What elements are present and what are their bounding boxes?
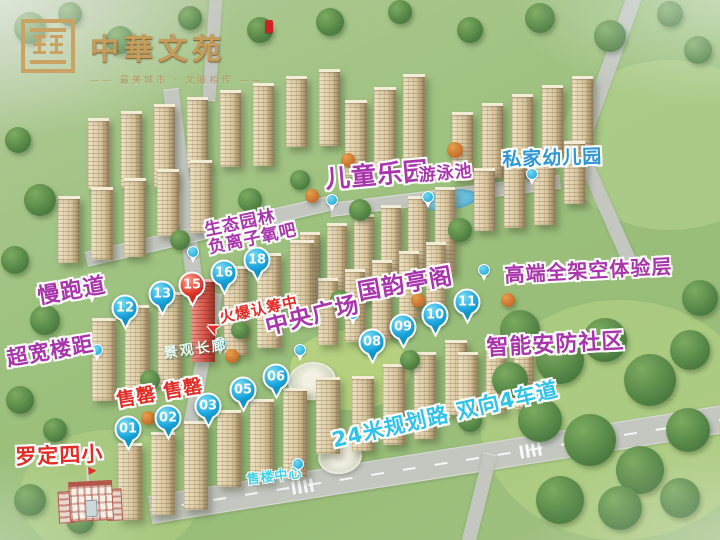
tree <box>564 414 616 466</box>
private-kindergarten-label: 私家幼儿园 <box>502 147 603 171</box>
elevated-experience-floor-label: 高端全架空体验层 <box>504 256 673 286</box>
building <box>286 76 307 147</box>
building <box>253 83 274 166</box>
building <box>157 169 179 236</box>
building <box>542 85 563 154</box>
building <box>91 187 113 260</box>
tree <box>316 8 344 36</box>
logo-seal-icon <box>20 18 76 74</box>
tree <box>24 184 56 216</box>
project-logo: 中華文苑 —— 最美城市 · 文脉相传 —— <box>20 18 263 86</box>
project-title: 中華文苑 <box>90 26 263 68</box>
building <box>474 168 495 231</box>
building <box>88 118 109 189</box>
amenity-pin-icon <box>478 264 490 276</box>
building <box>572 76 593 151</box>
building <box>58 196 80 263</box>
children-playground-label: 儿童乐园 <box>324 157 430 193</box>
building-pin-15[interactable]: 15 <box>179 272 206 299</box>
swimming-pool-label: 游泳池 <box>418 162 473 185</box>
tree <box>448 218 472 242</box>
amenity-pin-icon <box>326 194 338 206</box>
tree <box>682 280 718 316</box>
tree <box>43 418 67 442</box>
building <box>319 69 340 146</box>
school-icon <box>57 472 124 529</box>
tree <box>660 478 700 518</box>
building-pin-06[interactable]: 06 <box>263 364 290 391</box>
school-flag-icon <box>86 467 89 481</box>
tree <box>5 127 31 153</box>
tree <box>598 486 642 530</box>
building <box>403 74 425 163</box>
building-pin-13[interactable]: 13 <box>149 281 176 308</box>
tree <box>457 17 483 43</box>
tree <box>14 484 46 516</box>
tree <box>388 0 412 24</box>
building-pin-02[interactable]: 02 <box>155 405 182 432</box>
building <box>124 178 146 257</box>
tree <box>447 142 463 158</box>
tree <box>670 330 710 370</box>
building <box>217 410 241 487</box>
tree <box>657 1 683 27</box>
masterplan-image: 慢跑道超宽楼距儿童乐园游泳池私家幼儿园生态园林 负离子氧吧国韵亭阁中央广场高端全… <box>0 0 720 540</box>
jogging-track-label: 慢跑道 <box>36 274 108 309</box>
tree <box>6 386 34 414</box>
building-pin-18[interactable]: 18 <box>244 247 271 274</box>
tree <box>349 199 371 221</box>
tree <box>501 293 515 307</box>
building <box>374 87 396 170</box>
tree <box>141 411 155 425</box>
tree <box>594 20 626 52</box>
luoding-no4-primary-school-label: 罗定四小 <box>15 443 104 469</box>
tree <box>305 189 319 203</box>
building <box>187 97 208 168</box>
building <box>482 103 503 178</box>
amenity-pin-icon <box>187 246 199 258</box>
building-pin-05[interactable]: 05 <box>230 377 257 404</box>
project-tagline: —— 最美城市 · 文脉相传 —— <box>90 73 263 86</box>
building-pin-16[interactable]: 16 <box>211 260 238 287</box>
tree <box>525 3 555 33</box>
building-pin-12[interactable]: 12 <box>112 295 139 322</box>
tree <box>30 305 60 335</box>
logo-red-seal-icon <box>265 20 273 33</box>
building-pin-11[interactable]: 11 <box>454 289 481 316</box>
building-pin-08[interactable]: 08 <box>359 329 386 356</box>
building <box>220 90 241 167</box>
building-pin-09[interactable]: 09 <box>390 314 417 341</box>
amenity-pin-icon <box>422 191 434 203</box>
building-pin-10[interactable]: 10 <box>422 302 449 329</box>
tree <box>666 408 710 452</box>
tree <box>290 170 310 190</box>
tree <box>1 246 29 274</box>
wide-building-spacing-label: 超宽楼距 <box>5 333 96 371</box>
building-pin-01[interactable]: 01 <box>115 416 142 443</box>
tree <box>536 476 584 524</box>
building <box>121 111 142 188</box>
tree <box>684 36 712 64</box>
amenity-pin-icon <box>294 344 306 356</box>
tree <box>624 354 676 406</box>
